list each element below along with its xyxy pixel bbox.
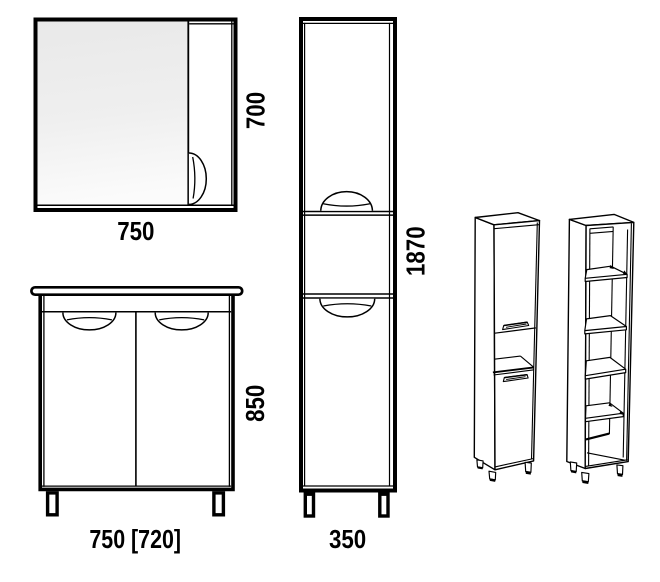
svg-text:750 [720]: 750 [720]: [89, 525, 181, 553]
svg-text:1870: 1870: [402, 226, 431, 276]
svg-text:700: 700: [242, 92, 271, 129]
svg-text:850: 850: [242, 385, 271, 422]
svg-text:350: 350: [329, 526, 366, 555]
svg-text:750: 750: [117, 218, 154, 247]
